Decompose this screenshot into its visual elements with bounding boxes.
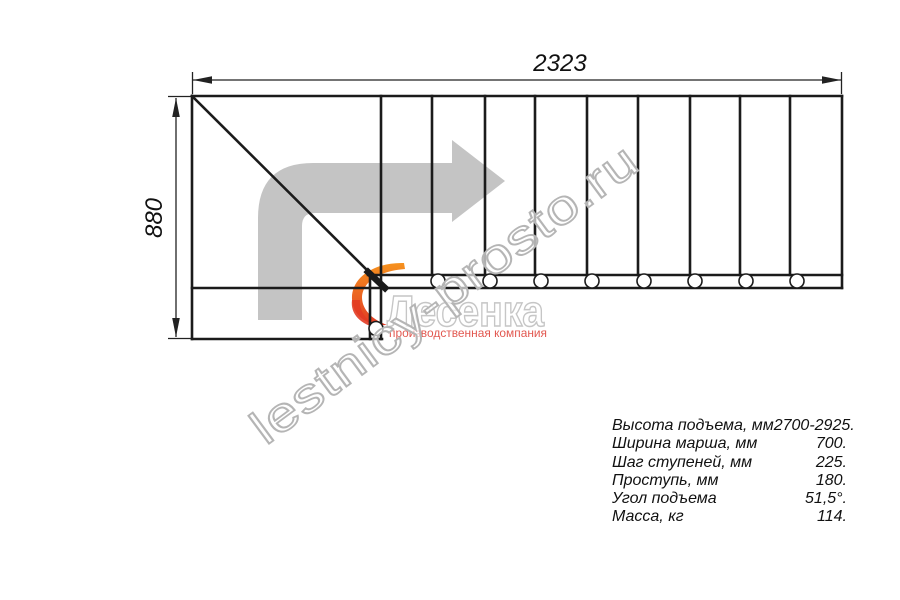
spec-value: 225.	[816, 454, 847, 472]
spec-value: 180.	[816, 472, 847, 490]
baluster-circle	[688, 274, 702, 288]
baluster-circle	[790, 274, 804, 288]
spec-list: Высота подъема, мм 2700-2925. Ширина мар…	[612, 417, 847, 527]
spec-row: Угол подъема 51,5°.	[612, 490, 847, 508]
spec-row: Высота подъема, мм 2700-2925.	[612, 417, 847, 435]
dim-arrowhead-bottom	[172, 318, 180, 337]
spec-row: Масса, кг 114.	[612, 508, 847, 526]
dim-height-label: 880	[141, 197, 168, 238]
spec-row: Шаг ступеней, мм 225.	[612, 454, 847, 472]
spec-value: 700.	[816, 435, 847, 453]
dimension-width	[193, 72, 842, 94]
baluster-circle	[534, 274, 548, 288]
spec-value: 114.	[817, 508, 847, 526]
spec-value: 2700-2925.	[774, 417, 855, 435]
spec-label: Проступь, мм	[612, 472, 718, 490]
spec-label: Угол подъема	[612, 490, 717, 508]
spec-row: Проступь, мм 180.	[612, 472, 847, 490]
spec-label: Масса, кг	[612, 508, 684, 526]
spec-label: Высота подъема, мм	[612, 417, 774, 435]
stair-drawing-page: 2323 880 Лесенка производственная компан…	[0, 0, 900, 600]
spec-row: Ширина марша, мм 700.	[612, 435, 847, 453]
dimension-height	[168, 97, 191, 339]
spec-label: Ширина марша, мм	[612, 435, 757, 453]
dim-arrowhead-left	[193, 76, 212, 84]
baluster-circle	[585, 274, 599, 288]
dim-arrowhead-top	[172, 98, 180, 117]
dim-width-label: 2323	[532, 50, 587, 77]
baluster-circle	[739, 274, 753, 288]
baluster-circle	[637, 274, 651, 288]
dim-arrowhead-right	[822, 76, 841, 84]
spec-value: 51,5°.	[805, 490, 847, 508]
spec-label: Шаг ступеней, мм	[612, 454, 752, 472]
